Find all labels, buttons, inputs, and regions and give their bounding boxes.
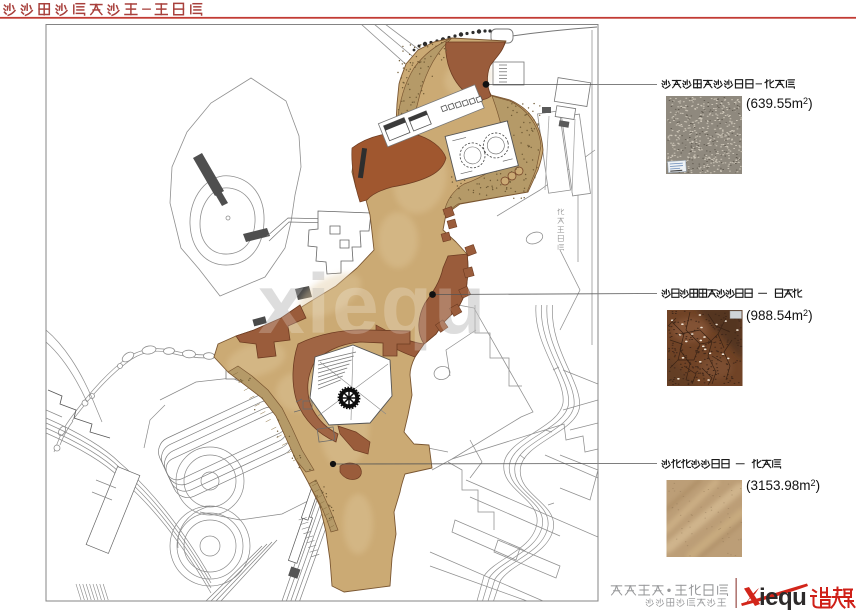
svg-text:iequ: iequ — [759, 584, 806, 610]
svg-text:xiequ: xiequ — [258, 257, 487, 351]
svg-text:(988.54m2): (988.54m2) — [746, 308, 813, 323]
svg-text:(3153.98m2): (3153.98m2) — [746, 478, 820, 493]
svg-text:(639.55m2): (639.55m2) — [746, 96, 813, 111]
